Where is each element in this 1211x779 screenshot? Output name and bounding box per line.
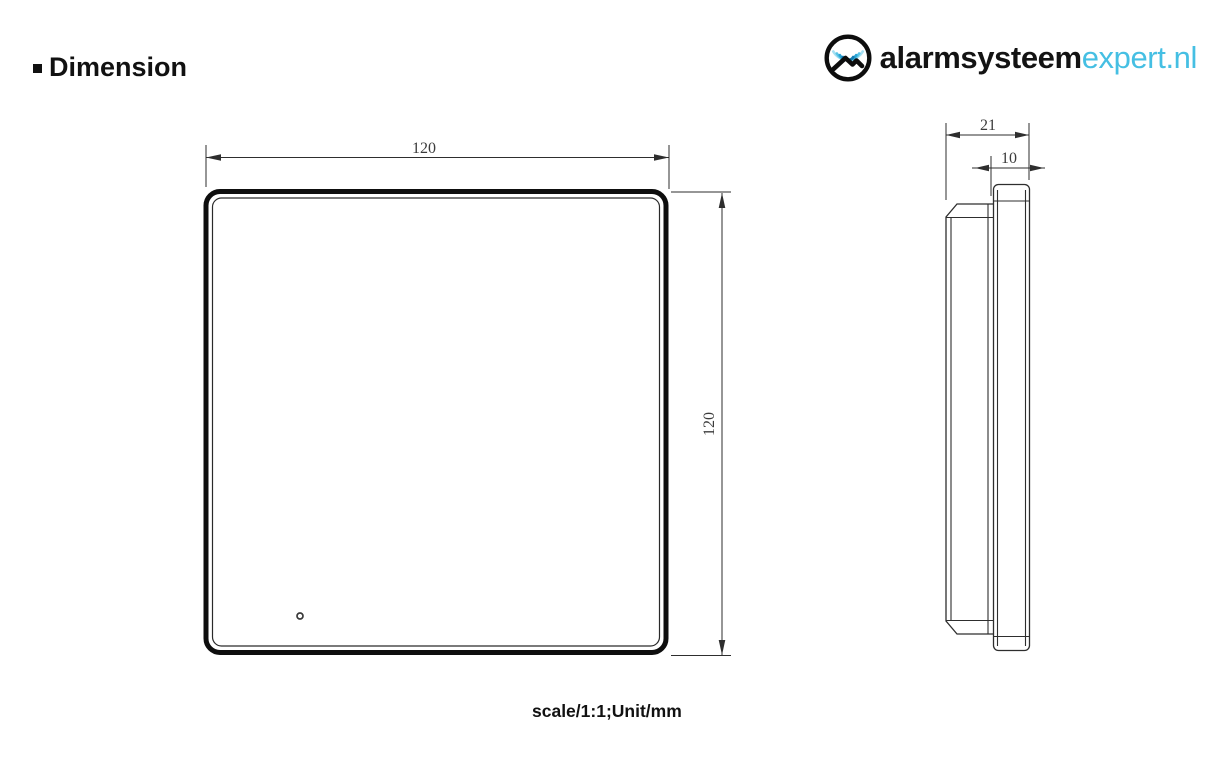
wifi-roof-icon	[823, 33, 873, 83]
arrowhead-left-icon	[946, 132, 960, 138]
arrowhead-left-icon	[206, 154, 221, 161]
square-bullet-icon	[33, 64, 42, 73]
front-view	[206, 192, 666, 653]
arrowhead-right-icon	[1015, 132, 1029, 138]
technical-drawing: 120 120 21	[0, 0, 1211, 779]
section-title: Dimension	[33, 52, 187, 83]
dim-label-panel-depth: 10	[1001, 150, 1017, 167]
arrowhead-down-icon	[719, 640, 726, 655]
dim-label-front-height: 120	[701, 412, 718, 436]
page-title: Dimension	[49, 52, 187, 83]
arrowhead-right-icon	[654, 154, 669, 161]
dim-label-front-width: 120	[412, 140, 436, 157]
brand-name-light: expert.nl	[1082, 40, 1197, 75]
side-view	[946, 185, 1030, 651]
dim-front-width	[206, 145, 669, 189]
brand-name: alarmsysteemexpert.nl	[880, 33, 1197, 83]
brand-name-bold: alarmsysteem	[880, 40, 1082, 75]
dim-label-side-depth: 21	[980, 117, 996, 134]
side-view-front-panel	[994, 185, 1030, 651]
brand-logo: alarmsysteemexpert.nl	[823, 33, 1197, 83]
arrowhead-left-icon	[975, 165, 989, 171]
scale-note: scale/1:1;Unit/mm	[532, 701, 682, 722]
front-view-outline	[206, 192, 666, 653]
indicator-dot	[297, 613, 303, 619]
arrowhead-right-icon	[1030, 165, 1044, 171]
arrowhead-up-icon	[719, 193, 726, 208]
side-view-back-box	[946, 204, 994, 634]
